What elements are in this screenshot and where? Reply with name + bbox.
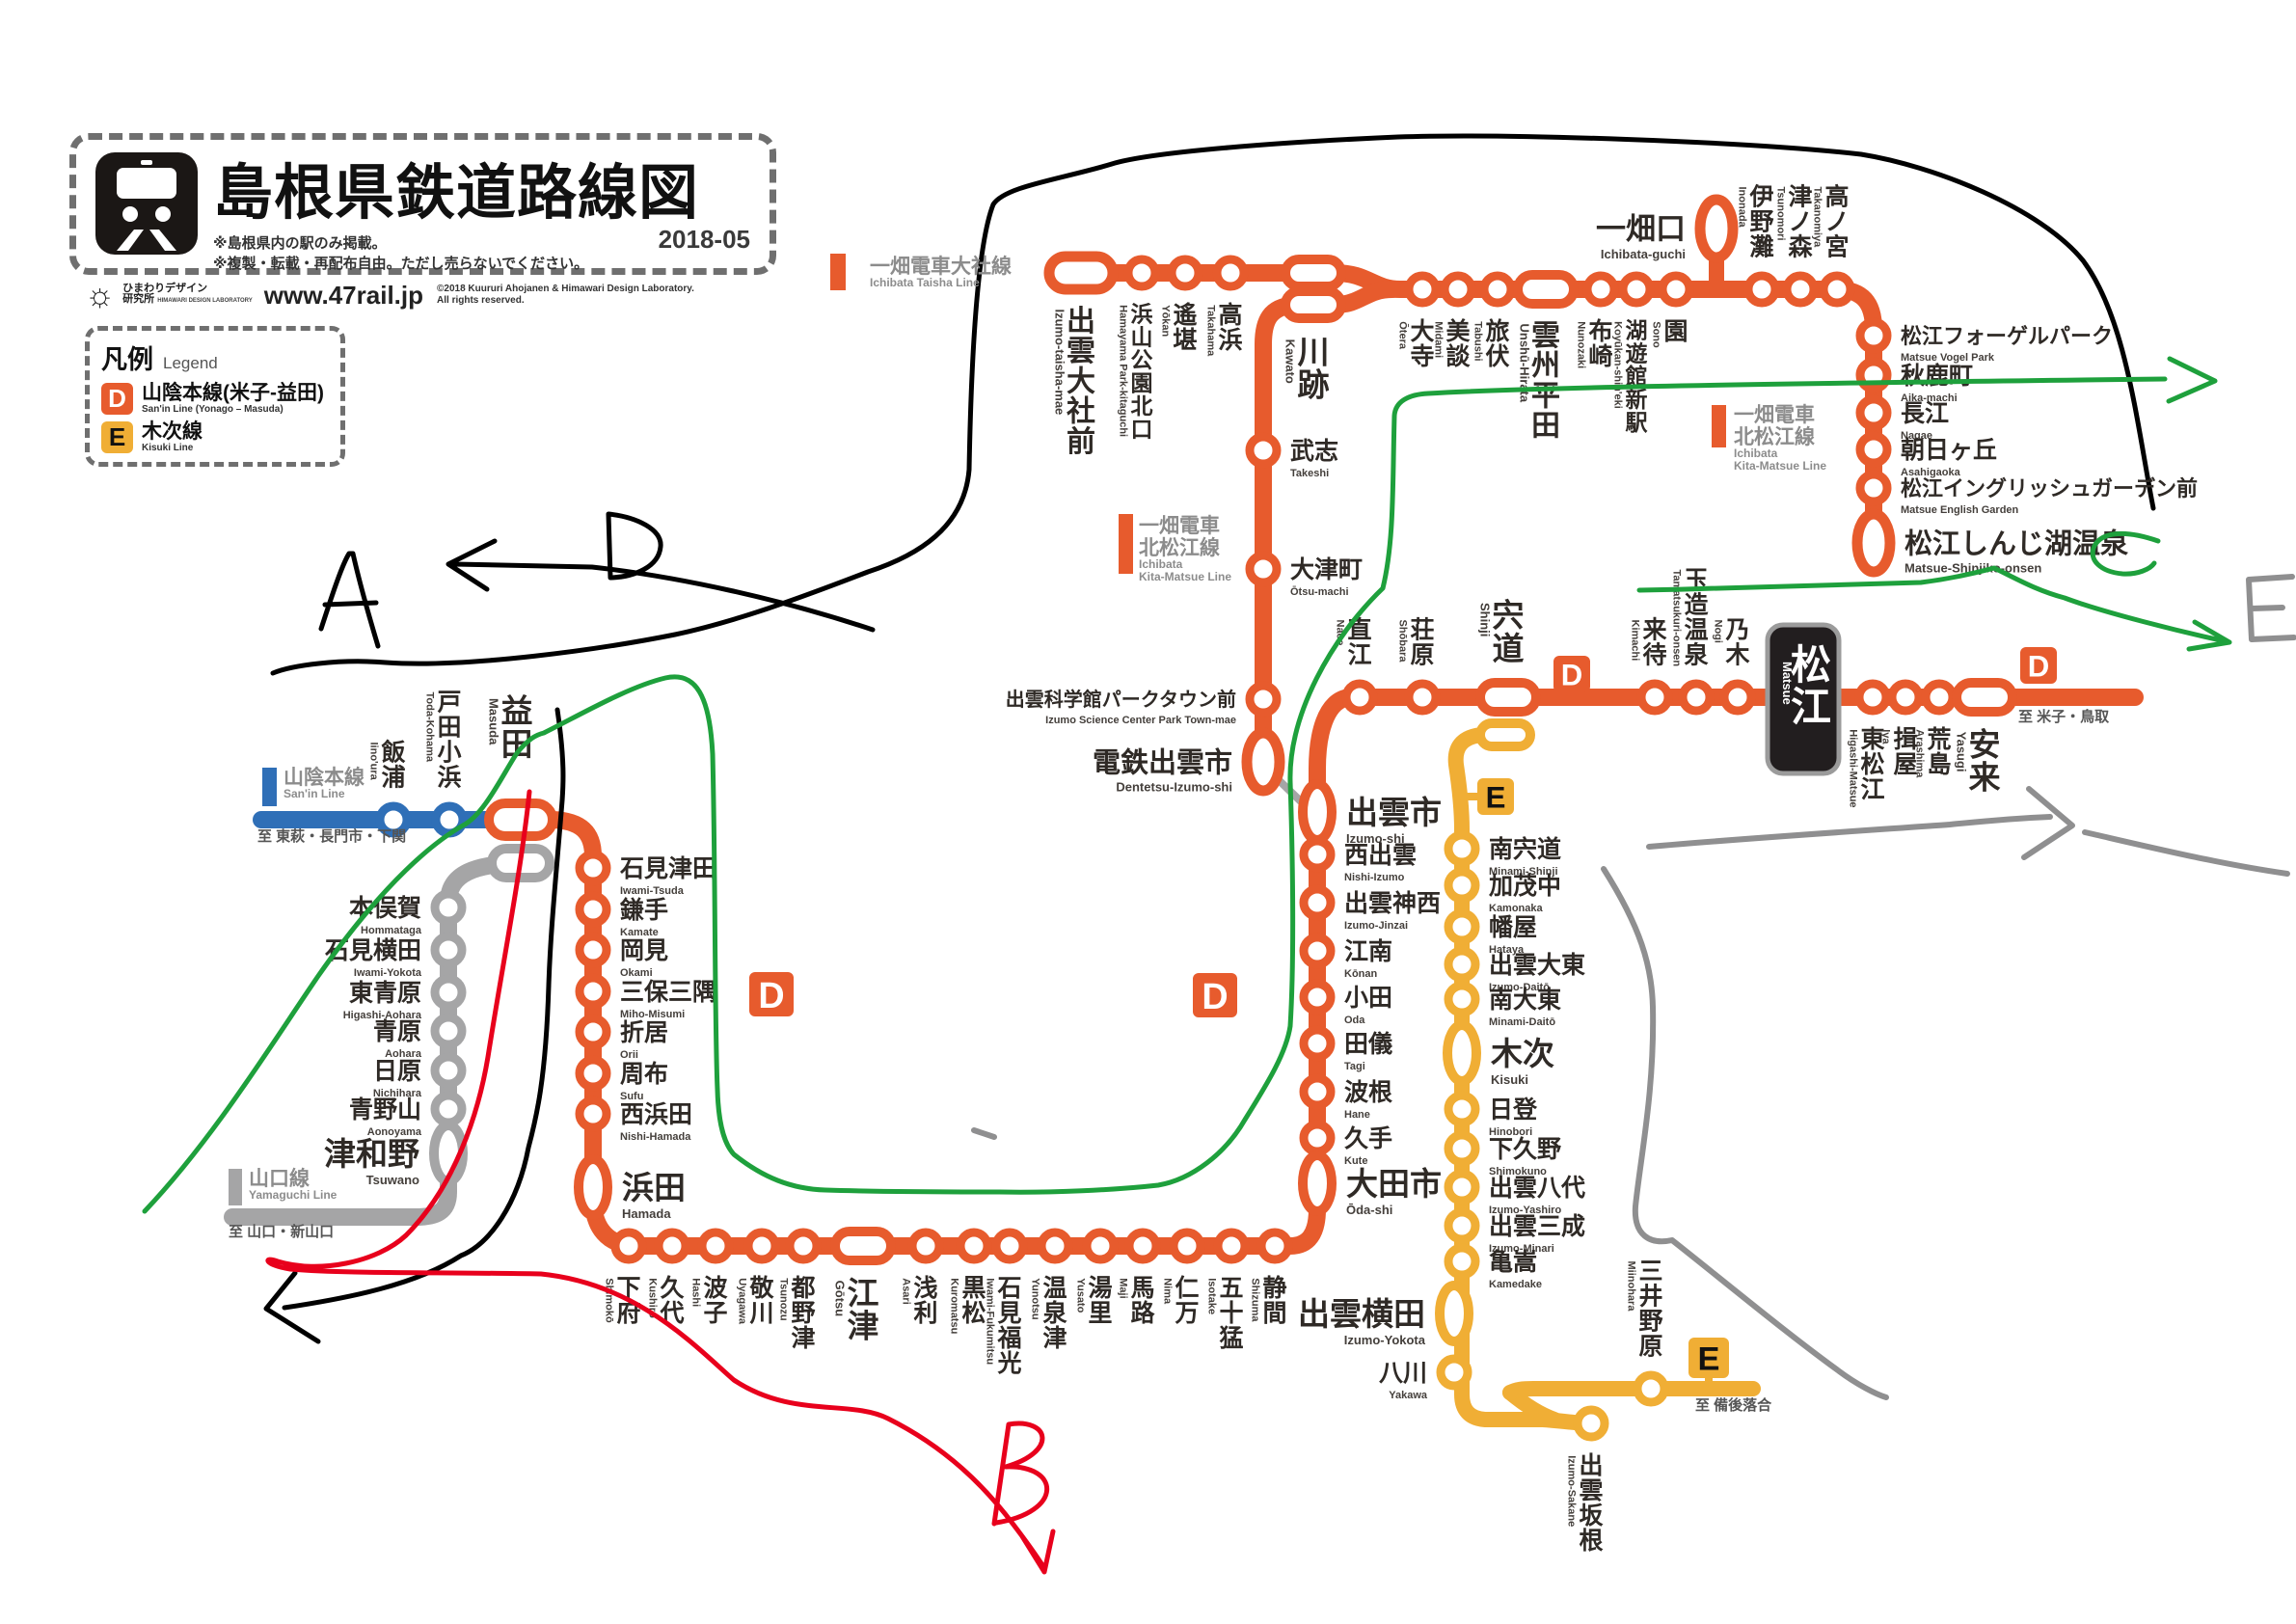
station-kawato-label: 川跡Kawato [1283,334,1330,402]
badge-letter: E [1698,1341,1720,1378]
station-unsh-hirata [1518,275,1574,304]
station-marker [1087,1232,1114,1259]
station-izumo-shi [1303,784,1332,840]
station-hamada [579,1159,608,1215]
station-nunozaki [1587,276,1614,303]
title-note-1: ※島根県内の駅のみ掲載。 [213,232,387,253]
station-label-ja: 石見福光 [996,1275,1021,1377]
station-y-kan [1172,259,1199,286]
line-label-en: Kita-Matsue Line [1139,570,1231,583]
station-hataya [1448,913,1475,940]
station-marker [1129,1232,1156,1259]
station-marker [702,1232,729,1259]
station-kimachi [1641,684,1668,711]
station-iwami-fukumitsu [996,1232,1023,1259]
station-label-ja: 伊野灘 [1748,183,1773,260]
station-label-ja: 出雲科学館パークタウン前 [1006,688,1236,711]
pill-shinji-kisuki-platform [1480,723,1530,746]
station-marker [1250,686,1277,713]
station-kamate-label: 鎌手Kamate [620,896,668,938]
station-iwami-tsuda-label: 石見津田Iwami-Tsuda [619,855,716,897]
station-label-en: Asari [901,1278,912,1305]
station-label-ja: 電鉄出雲市 [1093,745,1232,778]
station-marker [615,1232,642,1259]
line-label-en: Yamaguchi Line [249,1188,338,1202]
station-label-en: Nishi-Izumo [1344,872,1405,883]
station-yusato-label: 湯里Yusato [1075,1275,1113,1327]
station-miho-misumi-label: 三保三隅Miho-Misumi [620,979,716,1020]
station-marker [1303,784,1332,840]
station-label-en: Iwami-Tsuda [620,885,685,897]
station-iya [1892,684,1919,711]
ichibata-taisha-line-label: 一畑電車大社線Ichibata Taisha Line [830,254,1012,290]
station-label-en: Shimokō [604,1278,615,1323]
station-matsue-box: 松江Matsue [1768,625,1839,773]
station-da-shi [1303,1155,1332,1211]
station-label-en: Nunozaki [1576,321,1587,368]
station-takahama [1217,259,1244,286]
station-matsue-shinjiko-onsen-label: 松江しんじ湖温泉Matsue-Shinjiko-onsen [1904,527,2129,575]
station-kute-label: 久手Kute [1344,1125,1392,1167]
station-izumo-sakane-label: 出雲坂根Izumo-Sakane [1566,1452,1605,1555]
station-label-ja: 日原 [373,1058,421,1085]
station-kisuki [1447,1025,1476,1081]
credit-url: www.47rail.jp [264,281,423,311]
station-izumo-taisha-mae-label: 出雲大社前Izumo-taisha-mae [1052,306,1095,458]
station-miho-misumi [580,978,607,1005]
station-label-en: Minami-Daitō [1489,1016,1555,1028]
station-label-ja: 一畑口 [1596,212,1686,246]
station-label-ja: 湖遊館新駅 [1626,317,1648,435]
station-label-ja: 園 [1663,318,1688,345]
station-izumo-science-center-park-town-mae-label: 出雲科学館パークタウン前Izumo Science Center Park To… [1006,688,1236,726]
station-tagi-label: 田儀Tagi [1344,1030,1392,1072]
station-label-ja: 波子 [703,1275,728,1327]
station-tabushi-label: 旅伏Tabushi [1472,317,1510,370]
station-nagae [1860,399,1887,426]
station-label-ja: 出雲神西 [1344,890,1441,917]
station-label-ja: 玉造温泉 [1684,566,1708,668]
station-label-en: Isotake [1206,1278,1218,1314]
station-dentetsu-izumo-shi [1247,733,1280,791]
station-izumo-minari [1448,1212,1475,1239]
station-shimokuno-label: 下久野Shimokuno [1489,1136,1561,1177]
legend-badge-e: E [101,421,133,453]
station-marker [1409,276,1436,303]
station-marker [1637,1375,1664,1402]
station-marker [1683,684,1710,711]
station-marker [435,936,462,963]
station-higashi-matsue [1859,684,1886,711]
station-label-ja: 東青原 [349,980,421,1007]
station-marker [1957,683,2012,712]
station-maji-label: 馬路Maji [1118,1275,1156,1327]
station-izumo-science-center-park-town-mae [1250,686,1277,713]
station-marker [435,894,462,921]
shimane-railway-map-page: { "title": { "text": "島根県鉄道路線図", "note1"… [0,0,2296,1624]
station-takanomiya-label: 高ノ宮Takanomiya [1812,182,1850,260]
badge-d-west: D [749,972,794,1016]
station-label-en: Takeshi [1290,468,1329,479]
station-label-en: Ichibata-guchi [1601,247,1686,261]
station-kamate [580,896,607,923]
station-label-en: Izumo-Yokota [1344,1333,1426,1347]
station-marker [1926,684,1953,711]
station-label-en: Hane [1344,1109,1370,1121]
station-marker [996,1232,1023,1259]
station-nishi-izumo-label: 西出雲Nishi-Izumo [1344,842,1417,883]
station-naoe [1346,684,1373,711]
credit-rights: All rights reserved. [437,295,525,306]
station-marker [912,1232,939,1259]
line-swatch [1119,514,1133,574]
station-label-ja: 静間 [1262,1274,1286,1327]
station-label-ja: 出雲坂根 [1579,1452,1604,1555]
station-marker [1303,1155,1332,1211]
station-marker [1218,1232,1245,1259]
station-tsu-machi [1250,555,1277,582]
station-label-en: Shinji [1478,603,1493,636]
badge-e-miinohara: E [1688,1338,1729,1378]
station-label-en: Koyūkan-shin'eki [1612,321,1624,409]
station-marker [1662,276,1689,303]
station-yasugi [1957,683,2012,712]
station-yasugi-label: 安来Yasugi [1955,726,2001,795]
station-ichibata-guchi [1700,200,1733,257]
sun-logo-icon: ☼ [85,279,115,311]
station-label-en: Matsue English Garden [1901,504,2019,516]
station-koy-kan-shin-eki-label: 湖遊館新駅Koyūkan-shin'eki [1612,317,1648,435]
station-label-en: Midami [1433,321,1445,358]
station-label-en: Yōkan [1160,305,1172,337]
badge-letter: D [758,975,784,1015]
station-label-ja: 荒島 [1927,726,1951,778]
station-ichibata-guchi-label: 一畑口Ichibata-guchi [1596,212,1686,261]
station-label-ja: 温泉津 [1042,1275,1067,1352]
station-miinohara [1637,1375,1664,1402]
station-higashi-aohara [435,979,462,1006]
station-label-ja: 飯浦 [380,738,405,791]
handwritten-gray-long-arrow [1649,789,2287,874]
station-marker [1623,276,1650,303]
station-label-ja: 浅利 [913,1275,937,1327]
station-marker [1480,683,1536,712]
line-label-ja: 北松江線 [1734,425,1815,448]
station-oda [1304,984,1331,1011]
station-nogi-label: 乃木Nogi [1713,616,1750,668]
station-label-en: Kamate [620,927,659,938]
station-label-ja: 木次 [1490,1036,1554,1071]
station-hane-label: 波根Hane [1344,1079,1392,1121]
station-marker [1304,1124,1331,1151]
station-shinji-label: 宍道Shinji [1478,598,1525,666]
station-marker [1304,841,1331,868]
station-marker [1447,1025,1476,1081]
station-label-ja: 松江イングリッシュガーデン前 [1901,476,2198,501]
station-marker [1041,1232,1068,1259]
title-note-2: ※複製・転載・再配布自由。ただし売らないでください。 [213,253,588,273]
legend-kisuki-ja: 木次線 [142,421,203,443]
station-label-en: Ōtsu-machi [1290,586,1349,598]
station-label-ja: 湯里 [1088,1275,1112,1327]
station-label-ja: 戸田小浜 [437,689,461,791]
station-label-ja: 折居 [620,1019,668,1046]
station-hane [1304,1078,1331,1105]
station-label-ja: 出雲大社前 [1067,306,1095,458]
station-label-en: Hashi [690,1278,702,1307]
station-aohara-label: 青原Aohara [373,1018,422,1060]
station-marker [1128,259,1155,286]
station-nishi-hamada [580,1100,607,1127]
station-nishi-hamada-label: 西浜田Nishi-Hamada [620,1101,692,1143]
station-label-en: Arashima [1914,729,1926,778]
station-kuromatsu-label: 黒松Kuromatsu [949,1275,986,1334]
station-label-en: Nogi [1713,620,1724,643]
station-tsu-machi-label: 大津町Ōtsu-machi [1290,556,1363,598]
station-izumo-jinzai-label: 出雲神西Izumo-Jinzai [1344,890,1441,932]
station-marker [960,1232,987,1259]
station-label-ja: 安来 [1969,726,2001,795]
station-sh-bara-label: 荘原Shōbara [1397,616,1435,668]
station-izumo-jinzai [1304,889,1331,916]
station-label-ja: 遙堪 [1173,301,1197,354]
station-tsunomori [1787,276,1814,303]
credit-row: ☼ ひまわりデザイン 研究所 HIMAWARI DESIGN LABORATOR… [85,274,694,316]
station-kisuki-label: 木次Kisuki [1490,1036,1554,1087]
legend-row-kisuki: E 木次線 Kisuki Line [101,421,329,453]
station-shinji [1480,683,1536,712]
station-okami-label: 岡見Okami [620,937,668,979]
station-label-en: Okami [620,967,653,979]
station-label-ja: 出雲市 [1346,795,1442,830]
station-marker [1700,200,1733,257]
station-label-ja: 出雲三成 [1489,1213,1585,1240]
station-label-ja: 江南 [1344,938,1392,965]
station-tabushi [1484,276,1511,303]
station-kamedake [1448,1248,1475,1275]
line-label-en: San'in Line [284,787,345,800]
station-label-en: Masuda [487,698,501,745]
station-takahama-label: 高浜Takahama [1205,301,1243,357]
line-label-en: Kita-Matsue Line [1734,459,1826,473]
station-y-kan-label: 遙堪Yōkan [1160,301,1198,354]
station-asahigaoka-label: 朝日ヶ丘Asahigaoka [1901,437,1997,478]
station-hashi-label: 波子Hashi [690,1275,729,1327]
station-marker [580,1060,607,1087]
station-marker [1261,1232,1288,1259]
line-label-ja: 一畑電車大社線 [870,255,1012,278]
station-asahigaoka [1860,436,1887,463]
station-label-en: Yusato [1075,1278,1087,1313]
station-izumo-yokota-label: 出雲横田Izumo-Yokota [1298,1296,1426,1347]
station-g-tsu-label: 江津Gōtsu [833,1275,879,1343]
line-label-ja: 北松江線 [1139,536,1220,559]
station-koy-kan-shin-eki [1623,276,1650,303]
station-label-en: Inonada [1737,187,1748,229]
station-label-ja: 布崎 [1588,317,1612,370]
credit-copyright: ©2018 Kuururi Ahojanen & Himawari Design… [437,284,694,294]
station-marker [580,978,607,1005]
station-yunotsu-label: 温泉津Yunotsu [1030,1275,1067,1352]
station-kushiro [659,1232,686,1259]
station-izumo-dait [1448,951,1475,978]
station-label-en: Matsue [1780,662,1795,705]
station-yakawa [1441,1359,1468,1386]
station-marker [1860,474,1887,501]
yamaguchi-line-label: 山口線Yamaguchi Line [229,1167,338,1205]
station-label-en: Miinohara [1626,1261,1637,1313]
station-marker [1304,984,1331,1011]
station-marker [1860,322,1887,349]
station-tamatsukuri-onsen-label: 玉造温泉Tamatsukuri-onsen [1671,566,1709,668]
station-minami-dait [1448,986,1475,1013]
station-marker [1641,684,1668,711]
station-label-ja: 松江 [1791,642,1831,730]
station-marker [1448,1135,1475,1162]
station-tsuwano-label: 津和野Tsuwano [324,1136,419,1187]
station-label-en: Kōnan [1344,968,1378,980]
station-marker [1174,1232,1201,1259]
station-marker [1518,275,1574,304]
station-label-ja: 鎌手 [620,896,668,924]
station-label-en: Hommataga [361,925,422,936]
station-uyagawa-label: 敬川Uyagawa [737,1275,775,1327]
station-label-ja: 石見津田 [619,855,716,882]
station-label-ja: 敬川 [748,1275,774,1327]
station-matsue-vogel-park-label: 松江フォーゲルパークMatsue Vogel Park [1901,324,2113,364]
station-marker [1304,1078,1331,1105]
station-nogi [1724,684,1751,711]
station-label-en: Miho-Misumi [620,1009,685,1020]
line-label-ja: 一畑電車 [1139,515,1220,537]
station-k-nan [1304,937,1331,964]
station-label-ja: 津ノ森 [1788,183,1813,260]
station-tsunozu [790,1232,817,1259]
station-yusato [1087,1232,1114,1259]
station-hamayama-park-kitaguchi-label: 浜山公園北口Hamayama Park-kitaguchi [1118,301,1153,442]
station-higashi-aohara-label: 東青原Higashi-Aohara [343,980,422,1021]
station-tera-label: 大寺Ōtera [1397,318,1435,370]
station-marker [580,1018,607,1045]
station-label-en: Dentetsu-Izumo-shi [1116,779,1232,794]
to-yonago-tottori: 至 米子・鳥取 [2018,708,2110,725]
station-matsue-vogel-park [1860,322,1887,349]
station-marker [1346,684,1373,711]
station-tsunomori-label: 津ノ森Tsunomori [1775,183,1814,260]
station-label-en: Iino'ura [368,743,380,781]
station-orii [580,1018,607,1045]
station-label-en: Sufu [620,1091,643,1102]
station-label-ja: 秋鹿町 [1901,362,1973,390]
station-label-en: Sono [1651,321,1662,348]
station-label-en: Yakawa [1389,1390,1428,1401]
station-marker [1448,1248,1475,1275]
station-label-en: Izumo Science Center Park Town-mae [1045,715,1236,726]
to-bingo-ochiai: 至 備後落合 [1695,1396,1772,1414]
station-kushiro-label: 久代Kushiro [647,1275,685,1327]
station-label-en: Nima [1162,1278,1174,1305]
badge-letter: D [2028,649,2050,683]
station-label-en: Tsunomori [1775,187,1787,241]
station-marker [1250,437,1277,464]
station-label-en: Nishi-Hamada [620,1131,691,1143]
station-label-ja: 津和野 [324,1136,419,1172]
station-label-ja: 荘原 [1410,616,1434,668]
station-label-en: Izumo-Jinzai [1344,920,1408,932]
station-isotake [1218,1232,1245,1259]
station-unsh-hirata-label: 雲州平田Unshū-Hirata [1517,320,1560,443]
station-marker [579,1159,608,1215]
sanin-line-label: 山陰本線San'in Line [262,766,365,806]
station-marker [1823,276,1850,303]
station-label-ja: 出雲横田 [1298,1296,1425,1332]
station-marker [1250,555,1277,582]
station-minami-shinji-label: 南宍道Minami-Shinji [1489,835,1561,878]
station-label-ja: 美談 [1445,317,1471,370]
station-minami-dait-label: 南大東Minami-Daitō [1489,987,1561,1028]
station-label-en: Tamatsukuri-onsen [1671,570,1683,667]
station-sono-label: 園Sono [1651,318,1688,348]
station-label-ja: 高浜 [1218,301,1242,354]
station-label-en: Shōbara [1397,620,1409,663]
station-label-ja: 幡屋 [1489,914,1537,941]
badge-d-yasugi: D [2020,647,2057,684]
station-hashi [702,1232,729,1259]
station-marker [435,979,462,1006]
pill-kawato-lower [1285,291,1341,318]
station-kamonaka-label: 加茂中Kamonaka [1488,873,1561,914]
station-label-ja: 乃木 [1724,616,1749,668]
station-label-en: Tsunozu [778,1278,790,1320]
station-takeshi-label: 武志Takeshi [1290,438,1338,479]
station-izumo-shi-label: 出雲市Izumo-shi [1346,795,1442,846]
handwritten-letter-a [321,554,378,646]
station-label-en: Yasugi [1955,732,1969,772]
station-sufu-label: 周布Sufu [620,1060,668,1102]
line-swatch [830,254,846,290]
station-label-en: Hamada [622,1206,671,1221]
station-kuromatsu [960,1232,987,1259]
station-label-ja: 岡見 [620,937,668,964]
station-label-ja: 武志 [1290,438,1338,465]
station-label-en: Izumo-Sakane [1566,1455,1578,1527]
station-tamatsukuri-onsen [1683,684,1710,711]
station-label-en: Iwami-Yokota [354,967,422,979]
station-label-ja: 青野山 [349,1096,421,1123]
station-yunotsu [1041,1232,1068,1259]
station-marker [1304,937,1331,964]
station-hommataga-label: 本俣賀Hommataga [349,895,422,936]
station-label-en: Kisuki [1491,1072,1528,1087]
lab-name-ja2: 研究所 [122,293,154,305]
station-label-ja: 南大東 [1489,987,1561,1014]
station-hamada-label: 浜田Hamada [622,1170,686,1221]
station-aohara [435,1017,462,1044]
station-aonoyama-label: 青野山Aonoyama [349,1096,422,1138]
station-marker [1304,1030,1331,1057]
station-label-ja: 来待 [1642,616,1667,668]
station-marker [1247,733,1280,791]
station-marker [435,1096,462,1123]
station-miinohara-label: 三井野原Miinohara [1626,1258,1663,1360]
station-marker [1448,1212,1475,1239]
station-label-ja: 西浜田 [620,1101,692,1128]
line-label-ja: 一畑電車 [1734,404,1815,426]
station-label-ja: 黒松 [961,1275,986,1327]
station-higashi-matsue-label: 東松江Higashi-Matsue [1848,726,1885,808]
station-tera [1409,276,1436,303]
station-label-ja: 小田 [1344,985,1392,1012]
